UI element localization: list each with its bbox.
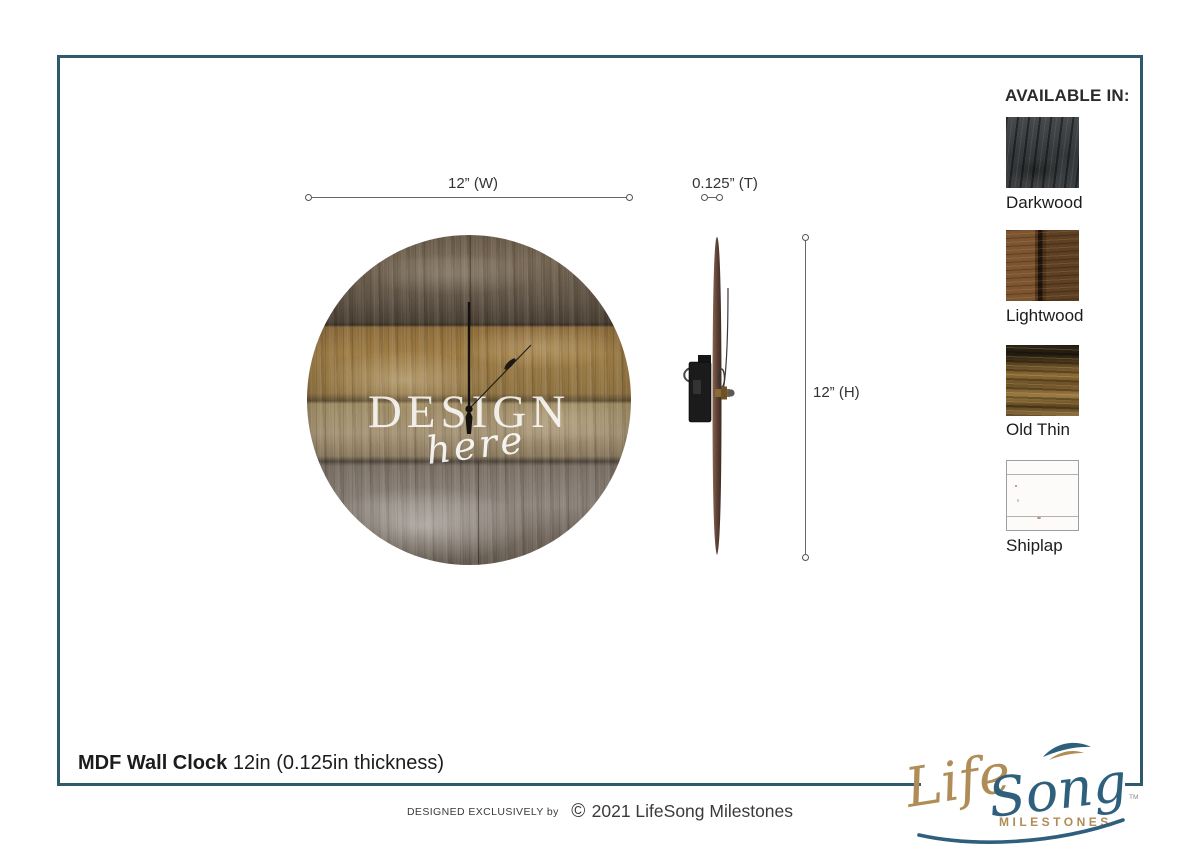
height-dimension-label: 12” (H)	[813, 384, 860, 401]
mechanism-dial	[693, 380, 701, 394]
shiplap-speck	[1015, 485, 1017, 487]
hand-counterweight	[466, 409, 473, 434]
shaft-nut	[721, 387, 727, 400]
second-hand-leaf	[503, 357, 517, 371]
credit-designed-by: DESIGNED EXCLUSIVELY by	[407, 806, 559, 818]
height-dim-endpoint-bottom	[802, 554, 809, 561]
shaft-cap	[727, 389, 734, 396]
available-in-header: AVAILABLE IN:	[1005, 86, 1130, 106]
width-dim-endpoint-left	[305, 194, 312, 201]
product-title: MDF Wall Clock 12in (0.125in thickness)	[78, 752, 444, 775]
swatch-darkwood-label: Darkwood	[1006, 193, 1083, 213]
clock-side-view	[660, 230, 760, 570]
shiplap-plank-line	[1007, 474, 1078, 475]
logo-tm-mark: TM	[1129, 794, 1138, 801]
thickness-dim-endpoint-left	[701, 194, 708, 201]
lifesong-logo: Life Song MILESTONES TM	[903, 733, 1143, 845]
swatch-old-thin	[1006, 345, 1079, 416]
product-title-specs: 12in (0.125in thickness)	[227, 752, 444, 774]
swatch-shiplap-label: Shiplap	[1006, 536, 1063, 556]
clock-hands	[307, 235, 631, 565]
swatch-lightwood	[1006, 230, 1079, 301]
height-dimension-line	[805, 241, 806, 554]
credit-company: 2021 LifeSong Milestones	[592, 801, 793, 821]
shiplap-plank-line	[1007, 516, 1078, 517]
width-dimension-line	[311, 197, 626, 198]
height-dim-endpoint-top	[802, 234, 809, 241]
copyright-icon: ©	[571, 801, 585, 822]
width-dimension-label: 12” (W)	[428, 175, 518, 192]
swatch-darkwood	[1006, 117, 1079, 188]
hand-hub	[465, 405, 472, 412]
shiplap-speck	[1017, 499, 1019, 502]
swatch-shiplap	[1006, 460, 1079, 531]
thickness-dimension-label: 0.125” (T)	[680, 175, 770, 192]
thickness-dim-endpoint-right	[716, 194, 723, 201]
second-hand	[469, 345, 531, 409]
swatch-old-thin-label: Old Thin	[1006, 420, 1070, 440]
width-dim-endpoint-right	[626, 194, 633, 201]
swatch-lightwood-label: Lightwood	[1006, 306, 1084, 326]
shiplap-speck	[1037, 517, 1041, 519]
product-title-name: MDF Wall Clock	[78, 752, 227, 774]
spec-sheet-page: 12” (W) 0.125” (T) 12” (H) DESIGN here	[0, 0, 1200, 846]
